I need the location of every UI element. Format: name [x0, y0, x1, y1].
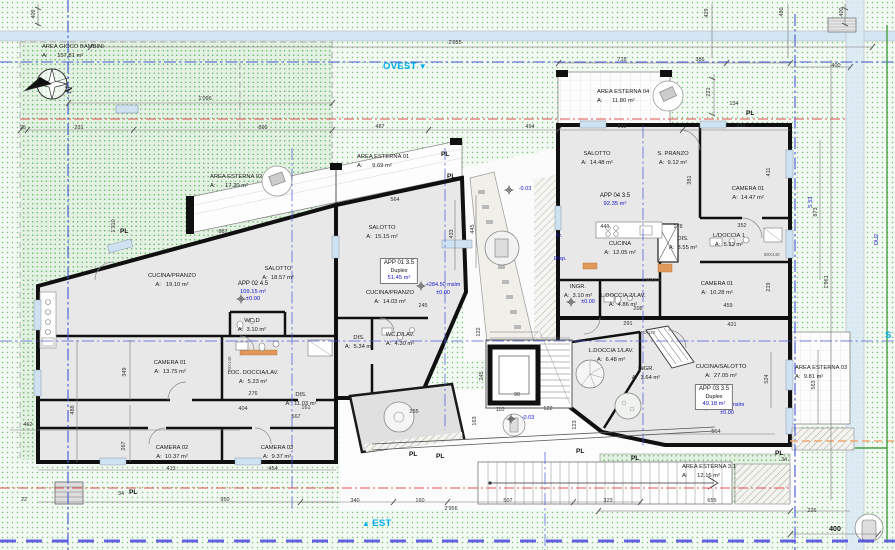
- boundary-point-label: PL: [576, 448, 584, 455]
- room-label: INGR.A: 3.10 m²: [564, 283, 592, 300]
- dimension-label: 352: [737, 223, 746, 229]
- elevation-label: -0.03: [522, 415, 535, 423]
- dimension-label: 2'956: [444, 506, 457, 512]
- room-label: CAMERA 01A: 10.28 m²: [701, 280, 734, 297]
- room-label: CUCINAA: 12.05 m²: [604, 240, 636, 257]
- dimension-label: 445: [470, 224, 476, 233]
- dimension-label: 564: [390, 197, 399, 203]
- dimension-label: 208: [633, 306, 642, 312]
- dimension-label: 567: [291, 414, 300, 420]
- room-label: CAMERA 01A: 13.75 m²: [154, 359, 187, 376]
- room-label: WC.DA: 3.10 m²: [238, 317, 266, 334]
- compass-north-label: N: [62, 85, 74, 94]
- elevation-label: -0.03: [519, 186, 532, 194]
- site-area-label: AREA ESTERNA 3.1A: 12.16 m²: [682, 463, 736, 482]
- label-ovest: OVEST▼: [383, 61, 429, 72]
- dimension-label: 34: [118, 491, 124, 497]
- dimension-label: 400: [831, 63, 840, 69]
- boundary-point-label: PL: [746, 110, 754, 117]
- dimension-label: 1'961: [824, 275, 830, 288]
- dimension-label: 245: [418, 303, 427, 309]
- dimension-label: 462: [23, 422, 32, 428]
- dimension-label: 231: [74, 125, 83, 131]
- dimension-label: 25: [20, 125, 26, 131]
- room-label: L/DOCCIA 1A: 5.32 m²: [713, 232, 745, 249]
- annotation-label: Disp.: [554, 256, 567, 262]
- dimension-label: 255: [409, 409, 418, 415]
- room-label: CUCINA/PRANZOA: 19.10 m²: [148, 272, 196, 289]
- room-label: SALOTTOA: 18.57 m²: [262, 265, 294, 282]
- dimension-label: 110: [496, 407, 505, 413]
- dimension-label: 122: [476, 327, 482, 336]
- dimension-label: 524: [764, 374, 770, 383]
- dimension-label: 718: [617, 57, 626, 63]
- dimension-label: 400: [839, 7, 845, 16]
- dimension-label: 386: [695, 57, 704, 63]
- dimension-label: 564: [711, 429, 720, 435]
- dimension-label: 245: [479, 371, 485, 380]
- dimension-label: 34: [781, 457, 787, 463]
- dimension-label: 226: [807, 508, 816, 514]
- room-label: CAMERA 03A: 9.37 m²: [261, 444, 294, 461]
- room-label: L.DOCCIA 1/LAV.A: 6.48 m²: [588, 347, 633, 364]
- fixture-size-label: 80X120: [646, 277, 662, 282]
- apartment-tag-app03: APP 03 3.5 Duplex 49.18 m²: [695, 384, 733, 410]
- elevation-label: ±0.00: [581, 299, 595, 307]
- room-label: S. PRANZOA: 9.12 m²: [657, 150, 688, 167]
- dimension-label: 950: [220, 497, 229, 503]
- room-label: DIS.A: 3.55 m²: [669, 235, 697, 252]
- annotation-label: DU2: [874, 234, 880, 245]
- dimension-label: 349: [122, 367, 128, 376]
- dimension-label: 459: [723, 303, 732, 309]
- dimension-label: 563: [811, 380, 817, 389]
- room-label: LOC. DOCCIA/LAV.A: 5.23 m²: [228, 369, 279, 386]
- boundary-point-label: PL: [447, 173, 455, 180]
- dimension-label: 276: [248, 391, 257, 397]
- apartment-tag-app04: APP 04 3.5 92.35 m²: [600, 193, 630, 208]
- dimension-label: 90: [514, 392, 520, 398]
- dimension-label: 441: [600, 224, 609, 230]
- site-area-label: AREA ESTERNA 01A: 9.69 m²: [357, 153, 409, 172]
- dimension-label: 413: [166, 466, 175, 472]
- dimension-label: 507: [503, 498, 512, 504]
- dimension-label: 431: [727, 322, 736, 328]
- dimension-label: 454: [268, 466, 277, 472]
- site-area-label: AREA ESTERNA 02A: 17.20 m²: [210, 173, 262, 192]
- room-label: DIS.A: 5.34 m²: [345, 334, 373, 351]
- boundary-point-label: PL: [129, 489, 137, 496]
- label-est: ▲EST: [360, 518, 392, 529]
- boundary-point-label: PL: [436, 453, 444, 460]
- label-sud: S: [885, 330, 892, 341]
- room-label: CAMERA 01A: 14.47 m²: [732, 185, 765, 202]
- annotation-label: Fr.: [556, 233, 562, 239]
- apartment-tag-app01: APP 01 3.5 Duplex 51.45 m²: [380, 258, 418, 284]
- dimension-label: 123: [572, 420, 578, 429]
- dimension-label: 323: [603, 498, 612, 504]
- dimension-label: 381: [687, 175, 693, 184]
- room-label: CUCINA/PRANZOA: 14.03 m²: [366, 289, 414, 306]
- fixture-size-label: 70X110: [640, 330, 655, 335]
- dimension-label: 429: [704, 8, 710, 17]
- room-label: WC.D/LAV.A: 4.30 m²: [386, 331, 415, 348]
- annotation-label: S 53: [808, 197, 814, 208]
- dimension-label: 163: [472, 416, 478, 425]
- dimension-label: 433: [449, 229, 455, 238]
- dimension-label: 655: [707, 498, 716, 504]
- room-label: SALOTTOA: 15.15 m²: [366, 224, 398, 241]
- dimension-label: 134: [729, 101, 738, 107]
- dimension-label: 409: [31, 9, 37, 18]
- dimension-label: 887: [218, 229, 227, 235]
- dimension-label: 352: [736, 123, 745, 129]
- dimension-label: 219: [766, 282, 772, 291]
- dimension-label: 404: [238, 406, 247, 412]
- labels-layer: AREA GIOCO BAMBINIA: 157.81 m²AREA ESTER…: [0, 0, 895, 550]
- boundary-point-label: PL: [120, 228, 128, 235]
- fixture-size-label: 80X140: [227, 356, 232, 372]
- dimension-label: 291: [623, 321, 632, 327]
- dimension-label: 267: [121, 441, 127, 450]
- dimension-label: 22: [21, 497, 27, 503]
- room-label: CAMERA 02A: 10.37 m²: [156, 444, 189, 461]
- dimension-label: 161: [301, 405, 310, 411]
- dimension-label: 400: [829, 526, 841, 533]
- elevation-label: +284.50 mslm±0.00: [426, 282, 461, 297]
- dimension-label: 487: [375, 124, 384, 130]
- boundary-point-label: PL: [775, 450, 783, 457]
- boundary-point-label: PL: [441, 151, 449, 158]
- room-label: INGR.A: 3.64 m²: [632, 365, 660, 382]
- dimension-label: 488: [70, 405, 76, 414]
- dimension-label: 619: [617, 124, 626, 130]
- dimension-label: 411: [766, 168, 772, 177]
- down-triangle-icon: ▼: [419, 62, 427, 71]
- dimension-label: 160: [415, 498, 424, 504]
- site-area-label: AREA GIOCO BAMBINIA: 157.81 m²: [42, 43, 104, 62]
- dimension-label: 1'096: [198, 96, 211, 102]
- dimension-label: 340: [350, 498, 359, 504]
- up-triangle-icon: ▲: [362, 519, 370, 528]
- room-label: SALOTTOA: 14.48 m²: [581, 150, 613, 167]
- dimension-label: 2'955: [448, 40, 461, 46]
- site-area-label: AREA ESTERNA 03A: 9.81 m²: [795, 364, 847, 383]
- site-area-label: AREA ESTERNA 04A: 11.80 m²: [597, 88, 649, 107]
- boundary-point-label: PL: [631, 455, 639, 462]
- dimension-label: 480: [779, 7, 785, 16]
- dimension-label: 494: [525, 124, 534, 130]
- fixture-size-label: 80X140: [764, 252, 780, 257]
- dimension-label: 122: [543, 406, 552, 412]
- dimension-label: 1'310: [111, 219, 117, 232]
- dimension-label: 221: [706, 87, 712, 96]
- dimension-label: 890: [258, 125, 267, 131]
- floor-plan-canvas: AREA GIOCO BAMBINIA: 157.81 m²AREA ESTER…: [0, 0, 895, 550]
- room-label: CUCINA/SALOTTOA: 27.05 m²: [696, 363, 747, 380]
- dimension-label: 873: [813, 207, 819, 216]
- boundary-point-label: PL: [409, 451, 417, 458]
- dimension-label: 178: [673, 224, 682, 230]
- apartment-tag-app02: APP 02 4.5 109.15 m² ±0.00: [238, 281, 268, 304]
